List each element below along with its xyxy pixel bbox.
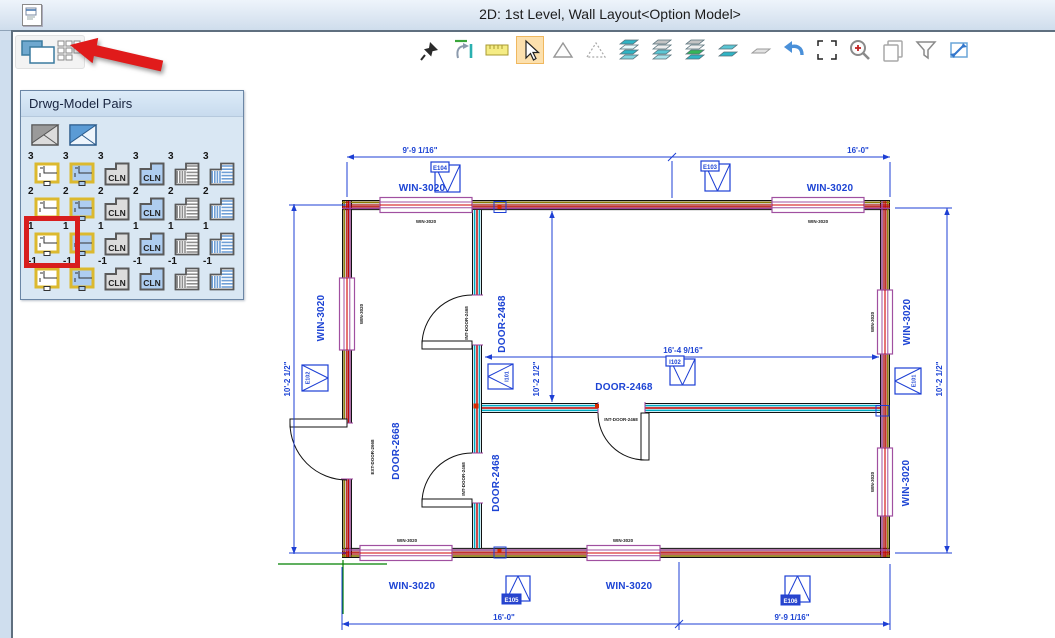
dim-text: 10'-2 1/2" bbox=[532, 361, 541, 396]
stripes-blue-icon bbox=[209, 232, 235, 261]
plan-blue-icon bbox=[69, 267, 95, 297]
floor-plan[interactable]: E104 E103 E105 E106 E102 E101 I101 I102 … bbox=[262, 132, 972, 638]
door-label: DOOR-2668 bbox=[391, 422, 402, 480]
stripes-blue-icon bbox=[209, 162, 235, 191]
pair-cell-1-stripes-blue[interactable]: 1 bbox=[202, 223, 237, 258]
pair-level: 3 bbox=[63, 151, 69, 162]
tool-measure-ruler[interactable] bbox=[483, 36, 511, 64]
cln-blue-icon: CLN bbox=[139, 162, 165, 191]
svg-text:CLN: CLN bbox=[143, 278, 160, 288]
pair-cell--1-cln-gray[interactable]: -1 CLN bbox=[97, 258, 132, 293]
plan-labels: WIN-3020 WIN-3020 WIN-3020 WIN-3020 WIN-… bbox=[316, 183, 913, 592]
tool-layers-pair[interactable] bbox=[714, 36, 742, 64]
window-label: WIN-3020 bbox=[902, 298, 913, 345]
pair-level: 2 bbox=[133, 186, 139, 197]
pair-cell--1-stripes-gray[interactable]: -1 bbox=[167, 258, 202, 293]
tool-filter[interactable] bbox=[912, 36, 940, 64]
marker-label: E102 bbox=[306, 372, 312, 385]
pair-level: -1 bbox=[203, 256, 212, 267]
stripes-gray-icon bbox=[174, 267, 200, 296]
pair-cell-2-stripes-gray[interactable]: 2 bbox=[167, 188, 202, 223]
window-label: WIN-3020 bbox=[389, 581, 436, 592]
pair-cell-3-plan-white[interactable]: 3 bbox=[27, 153, 62, 188]
marker-label: E106 bbox=[783, 599, 798, 605]
stripes-gray-icon bbox=[174, 232, 200, 261]
dim-text: 10'-2 1/2" bbox=[283, 361, 292, 396]
tiny-door-label: INT-DOOR-2468 bbox=[464, 306, 469, 340]
svg-text:CLN: CLN bbox=[143, 173, 160, 183]
tool-zoom-in[interactable] bbox=[846, 36, 874, 64]
marker-label: E105 bbox=[504, 598, 519, 604]
tool-polygon[interactable] bbox=[549, 36, 577, 64]
pair-level: 1 bbox=[98, 221, 104, 232]
tiny-door-label: EXT-DOOR-2668 bbox=[370, 439, 375, 475]
annotation-highlight-box bbox=[24, 216, 80, 268]
tool-send-to-window[interactable] bbox=[945, 36, 973, 64]
pair-level: 1 bbox=[133, 221, 139, 232]
svg-text:CLN: CLN bbox=[108, 173, 125, 183]
pair-cell-3-cln-blue[interactable]: 3 CLN bbox=[132, 153, 167, 188]
stripes-gray-icon bbox=[174, 162, 200, 191]
tiny-labels: WIN-3020 WIN-3020 WIN-3020 WIN-3020 WIN-… bbox=[359, 219, 875, 543]
marker-label: E103 bbox=[703, 165, 718, 171]
pair-cell-1-stripes-gray[interactable]: 1 bbox=[167, 223, 202, 258]
drwg-model-pairs-palette: Drwg-Model Pairs 3 3 3 CLN3 CLN3 3 2 2 bbox=[20, 90, 244, 300]
dim-text: 9'-9 1/16" bbox=[774, 613, 809, 622]
plan-white-icon bbox=[34, 267, 60, 297]
corner-model-blue-icon[interactable] bbox=[68, 123, 98, 149]
tiny-window-label: WIN-3020 bbox=[808, 219, 829, 224]
pair-level: 1 bbox=[168, 221, 174, 232]
pair-cell-2-cln-blue[interactable]: 2 CLN bbox=[132, 188, 167, 223]
tool-layers-top-off[interactable] bbox=[648, 36, 676, 64]
annotation-arrow-icon bbox=[55, 30, 175, 80]
tiny-door-label: INT-DOOR-2468 bbox=[604, 417, 638, 422]
svg-text:CLN: CLN bbox=[143, 208, 160, 218]
door-label: DOOR-2468 bbox=[491, 454, 502, 512]
palette-title: Drwg-Model Pairs bbox=[21, 91, 243, 117]
door-label: DOOR-2468 bbox=[595, 382, 653, 393]
tiny-window-label: WIN-3020 bbox=[870, 311, 875, 332]
pair-cell-1-cln-gray[interactable]: 1 CLN bbox=[97, 223, 132, 258]
marker-I102: I102 bbox=[666, 356, 695, 385]
tiny-window-label: WIN-3020 bbox=[613, 538, 634, 543]
cln-gray-icon: CLN bbox=[104, 232, 130, 261]
pair-level: 3 bbox=[98, 151, 104, 162]
tiny-door-label: INT-DOOR-2468 bbox=[461, 462, 466, 496]
pair-level: 2 bbox=[168, 186, 174, 197]
tool-fit-extents[interactable] bbox=[450, 36, 478, 64]
pair-level: 2 bbox=[203, 186, 209, 197]
tiny-window-label: WIN-3020 bbox=[870, 471, 875, 492]
window-label: WIN-3020 bbox=[316, 294, 327, 341]
marker-label: E104 bbox=[433, 166, 448, 172]
marker-I101: I101 bbox=[488, 364, 513, 389]
tool-layer-single[interactable] bbox=[747, 36, 775, 64]
pair-level: 2 bbox=[28, 186, 34, 197]
marker-label: I102 bbox=[669, 360, 681, 366]
cln-gray-icon: CLN bbox=[104, 162, 130, 191]
stripes-blue-icon bbox=[209, 267, 235, 296]
dim-text: 16'-4 9/16" bbox=[663, 346, 703, 355]
pair-cell-3-cln-gray[interactable]: 3 CLN bbox=[97, 153, 132, 188]
svg-text:CLN: CLN bbox=[143, 243, 160, 253]
main-toolbar bbox=[417, 36, 973, 64]
cln-gray-icon: CLN bbox=[104, 197, 130, 226]
pair-cell--1-cln-blue[interactable]: -1 CLN bbox=[132, 258, 167, 293]
window-label: WIN-3020 bbox=[399, 183, 446, 194]
pair-level: 2 bbox=[98, 186, 104, 197]
tool-layers-active[interactable] bbox=[681, 36, 709, 64]
tool-layers-all[interactable] bbox=[615, 36, 643, 64]
cln-blue-icon: CLN bbox=[139, 267, 165, 296]
tool-polygon-dashed[interactable] bbox=[582, 36, 610, 64]
pair-level: 3 bbox=[168, 151, 174, 162]
marker-E106: E106 bbox=[781, 576, 810, 605]
pair-level: 3 bbox=[133, 151, 139, 162]
pair-level: 2 bbox=[63, 186, 69, 197]
corner-model-gray-icon[interactable] bbox=[30, 123, 60, 149]
svg-text:CLN: CLN bbox=[108, 278, 125, 288]
pair-level: 3 bbox=[28, 151, 34, 162]
door-label: DOOR-2468 bbox=[497, 295, 508, 353]
stripes-blue-icon bbox=[209, 197, 235, 226]
pair-cell-3-plan-blue[interactable]: 3 bbox=[62, 153, 97, 188]
cln-blue-icon: CLN bbox=[139, 197, 165, 226]
title-bar: 2D: 1st Level, Wall Layout<Option Model> bbox=[0, 0, 1055, 31]
stripes-gray-icon bbox=[174, 197, 200, 226]
pair-cell-1-cln-blue[interactable]: 1 CLN bbox=[132, 223, 167, 258]
pair-cell--1-stripes-blue[interactable]: -1 bbox=[202, 258, 237, 293]
cascade-windows-icon[interactable] bbox=[22, 41, 54, 63]
marker-E101: E101 bbox=[895, 368, 921, 394]
pair-level: 3 bbox=[203, 151, 209, 162]
dim-text: 10'-2 1/2" bbox=[935, 361, 944, 396]
window-label: WIN-3020 bbox=[901, 459, 912, 506]
tool-undo[interactable] bbox=[780, 36, 808, 64]
dim-text: 16'-0" bbox=[493, 613, 515, 622]
marker-label: I101 bbox=[505, 371, 511, 382]
pair-level: 1 bbox=[203, 221, 209, 232]
pair-level: -1 bbox=[168, 256, 177, 267]
marker-E103: E103 bbox=[701, 161, 730, 191]
dim-text: 9'-9 1/16" bbox=[402, 146, 437, 155]
tiny-window-label: WIN-3020 bbox=[416, 219, 437, 224]
pair-cell-2-stripes-blue[interactable]: 2 bbox=[202, 188, 237, 223]
svg-text:CLN: CLN bbox=[108, 208, 125, 218]
tool-selection-box[interactable] bbox=[813, 36, 841, 64]
tool-copy-sheets[interactable] bbox=[879, 36, 907, 64]
window-label: WIN-3020 bbox=[606, 581, 653, 592]
svg-text:CLN: CLN bbox=[108, 243, 125, 253]
axis-origin bbox=[278, 560, 387, 614]
window-title: 2D: 1st Level, Wall Layout<Option Model> bbox=[0, 6, 1055, 22]
tiny-window-label: WIN-3020 bbox=[397, 538, 418, 543]
cln-gray-icon: CLN bbox=[104, 267, 130, 296]
pair-level: -1 bbox=[98, 256, 107, 267]
tiny-window-label: WIN-3020 bbox=[359, 303, 364, 324]
dim-text: 16'-0" bbox=[847, 146, 869, 155]
marker-E102: E102 bbox=[302, 365, 328, 391]
cln-blue-icon: CLN bbox=[139, 232, 165, 261]
pair-cell-3-stripes-gray[interactable]: 3 bbox=[167, 153, 202, 188]
marker-E105: E105 bbox=[502, 576, 530, 604]
pair-level: -1 bbox=[133, 256, 142, 267]
pair-cell-3-stripes-blue[interactable]: 3 bbox=[202, 153, 237, 188]
window-label: WIN-3020 bbox=[807, 183, 854, 194]
pair-cell-2-cln-gray[interactable]: 2 CLN bbox=[97, 188, 132, 223]
tool-select-cursor[interactable] bbox=[516, 36, 544, 64]
tool-pin[interactable] bbox=[417, 36, 445, 64]
marker-label: E101 bbox=[912, 375, 918, 388]
